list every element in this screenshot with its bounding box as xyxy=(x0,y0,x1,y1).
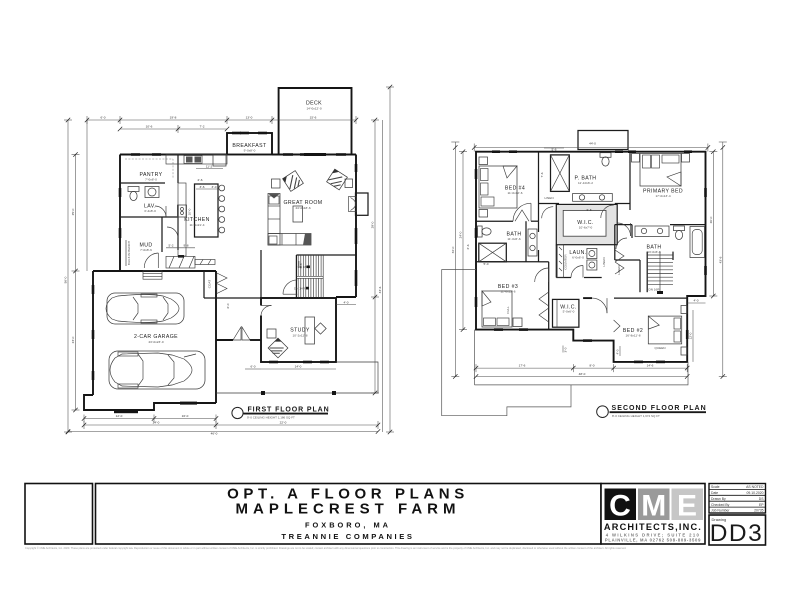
svg-text:22'-0: 22'-0 xyxy=(280,421,287,425)
svg-text:9'-0x8'-0: 9'-0x8'-0 xyxy=(244,149,256,153)
svg-text:E: E xyxy=(677,490,697,523)
svg-text:DN 14R: DN 14R xyxy=(294,286,306,290)
svg-text:11'-0x12'-6: 11'-0x12'-6 xyxy=(501,290,516,294)
svg-text:3'-4x8'-0: 3'-4x8'-0 xyxy=(144,209,156,213)
svg-text:15'-6: 15'-6 xyxy=(310,116,317,120)
svg-text:17'-6: 17'-6 xyxy=(519,364,526,368)
svg-text:25'-0: 25'-0 xyxy=(71,208,75,215)
svg-text:9'-8: 9'-8 xyxy=(183,244,188,248)
svg-text:PLAINVILLE, MA 02762 508-809-3: PLAINVILLE, MA 02762 508-809-3509 xyxy=(605,538,701,543)
svg-text:TREANNIE COMPANIES: TREANNIE COMPANIES xyxy=(281,532,414,541)
svg-text:FIRST FLOOR PLAN: FIRST FLOOR PLAN xyxy=(248,406,330,413)
svg-text:Scale: Scale xyxy=(711,485,720,489)
svg-text:10'-6x7'-0: 10'-6x7'-0 xyxy=(579,226,593,230)
svg-text:6'-0x6'-0: 6'-0x6'-0 xyxy=(572,256,584,260)
svg-text:5'-2: 5'-2 xyxy=(168,244,173,248)
svg-text:24'-0: 24'-0 xyxy=(459,231,463,238)
svg-text:09.10.2020: 09.10.2020 xyxy=(747,491,764,495)
svg-text:11'-10x6'-2: 11'-10x6'-2 xyxy=(578,181,593,185)
svg-text:7'-0x8'-0: 7'-0x8'-0 xyxy=(145,178,157,182)
svg-text:ARCHITECTS,INC.: ARCHITECTS,INC. xyxy=(604,522,702,532)
svg-text:7'-6: 7'-6 xyxy=(540,172,544,177)
svg-text:DN 16R: DN 16R xyxy=(648,288,660,292)
svg-text:56'-0: 56'-0 xyxy=(64,276,68,283)
svg-text:COUNTER: COUNTER xyxy=(564,254,568,270)
svg-text:3'-8: 3'-8 xyxy=(299,263,303,268)
svg-text:FULL: FULL xyxy=(506,306,510,314)
svg-text:14'-0x12'-0: 14'-0x12'-0 xyxy=(306,107,321,111)
svg-text:3'-0: 3'-0 xyxy=(564,347,568,352)
svg-text:6'-0: 6'-0 xyxy=(100,116,105,120)
svg-text:43'-6: 43'-6 xyxy=(378,286,382,293)
svg-text:4'-0: 4'-0 xyxy=(616,349,620,354)
svg-text:11'-0x6'-6: 11'-0x6'-6 xyxy=(507,237,520,241)
svg-text:SECOND FLOOR PLAN: SECOND FLOOR PLAN xyxy=(612,405,707,412)
svg-text:24'-0: 24'-0 xyxy=(153,421,160,425)
svg-text:23'-0x23'-0: 23'-0x23'-0 xyxy=(148,340,163,344)
svg-text:44'-0: 44'-0 xyxy=(589,142,596,146)
svg-text:LINEN: LINEN xyxy=(617,265,621,274)
svg-text:BUILT-IN BENCH: BUILT-IN BENCH xyxy=(127,241,131,265)
svg-text:3'-6: 3'-6 xyxy=(199,185,204,189)
svg-text:12'-0: 12'-0 xyxy=(116,414,123,418)
svg-text:Job Number: Job Number xyxy=(711,509,730,513)
svg-text:16'-8x11'-8: 16'-8x11'-8 xyxy=(626,334,641,338)
svg-text:14'-6: 14'-6 xyxy=(647,364,654,368)
svg-text:Drawn By: Drawn By xyxy=(711,497,726,501)
svg-text:EP: EP xyxy=(759,503,764,507)
svg-text:13'-0: 13'-0 xyxy=(246,116,253,120)
svg-text:C: C xyxy=(609,490,631,523)
svg-text:DS: DS xyxy=(759,497,764,501)
svg-text:2'-6: 2'-6 xyxy=(466,244,470,249)
svg-text:LINEN: LINEN xyxy=(602,257,606,266)
svg-text:LINEN: LINEN xyxy=(544,196,553,200)
svg-text:7'-0x8'-6: 7'-0x8'-6 xyxy=(140,248,152,252)
svg-text:20735: 20735 xyxy=(754,509,764,513)
svg-text:FOXBORO, MA: FOXBORO, MA xyxy=(305,521,391,530)
svg-text:14'-0: 14'-0 xyxy=(295,365,302,369)
svg-text:11'-2: 11'-2 xyxy=(206,164,213,168)
svg-text:19'-8: 19'-8 xyxy=(170,116,177,120)
svg-text:5'-0: 5'-0 xyxy=(483,262,488,266)
svg-text:DD3: DD3 xyxy=(710,520,764,547)
svg-text:5'-0x6'-0: 5'-0x6'-0 xyxy=(563,310,575,314)
svg-text:12'-0: 12'-0 xyxy=(689,332,693,339)
svg-text:6'-0: 6'-0 xyxy=(226,303,230,308)
svg-text:10'-0: 10'-0 xyxy=(188,208,192,215)
svg-text:8'-0: 8'-0 xyxy=(589,364,594,368)
svg-text:6'-0: 6'-0 xyxy=(250,365,255,369)
svg-text:Checked By: Checked By xyxy=(711,503,730,507)
svg-text:43'-6: 43'-6 xyxy=(718,256,722,263)
svg-text:28'-0: 28'-0 xyxy=(371,221,375,228)
svg-text:4'-0: 4'-0 xyxy=(343,300,348,304)
svg-text:Copyright © CME Architects, In: Copyright © CME Architects, Inc. 2020. T… xyxy=(25,546,627,550)
svg-text:11'-0x12'-6: 11'-0x12'-6 xyxy=(508,191,523,195)
svg-text:QUEEN: QUEEN xyxy=(654,346,665,350)
svg-text:24'-0x18'-6: 24'-0x18'-6 xyxy=(295,206,310,210)
svg-text:10'-2x11'-8: 10'-2x11'-8 xyxy=(293,334,308,338)
svg-text:48'-0: 48'-0 xyxy=(579,372,586,376)
svg-text:6'-8: 6'-8 xyxy=(586,208,591,212)
svg-text:9'-0 CEILING HEIGHT 1,186 SQ: 9'-0 CEILING HEIGHT 1,186 SQ FT xyxy=(247,415,295,419)
svg-text:34'-0: 34'-0 xyxy=(451,246,455,253)
svg-text:MAPLECREST FARM: MAPLECREST FARM xyxy=(236,501,461,518)
svg-text:3'-0: 3'-0 xyxy=(211,185,216,189)
svg-text:26'-0: 26'-0 xyxy=(709,216,713,223)
svg-text:AS NOTED: AS NOTED xyxy=(746,485,764,489)
svg-text:4'-0: 4'-0 xyxy=(693,299,698,303)
svg-text:17'-0x13'-4: 17'-0x13'-4 xyxy=(655,194,670,198)
svg-text:23'-0: 23'-0 xyxy=(71,336,75,343)
svg-text:COAT: COAT xyxy=(208,280,212,288)
svg-text:10'-6: 10'-6 xyxy=(146,125,153,129)
svg-text:46'-0: 46'-0 xyxy=(211,432,218,436)
svg-text:M: M xyxy=(641,490,666,523)
svg-text:Date: Date xyxy=(711,491,718,495)
svg-text:11'-6x21'-4: 11'-6x21'-4 xyxy=(190,223,205,227)
svg-text:16'-0: 16'-0 xyxy=(182,414,189,418)
svg-text:8'-0 CEILING HEIGHT 1,674 SQ: 8'-0 CEILING HEIGHT 1,674 SQ FT xyxy=(612,414,660,418)
svg-text:7'-2: 7'-2 xyxy=(199,125,204,129)
svg-text:13'-0x6'-6: 13'-0x6'-6 xyxy=(647,250,661,254)
svg-text:2'-6: 2'-6 xyxy=(197,178,202,182)
